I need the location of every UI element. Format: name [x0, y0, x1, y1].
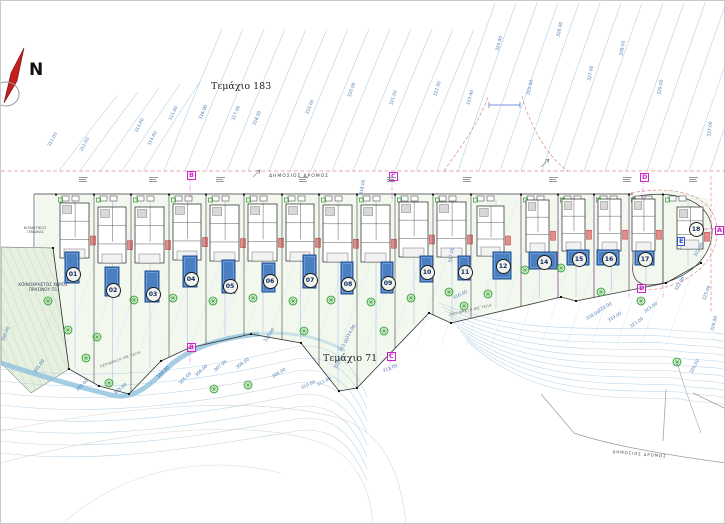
plot-number-16: 16: [602, 252, 617, 267]
tree-symbol: [64, 326, 72, 334]
contour-line: [668, 3, 725, 171]
utility-red-box: [468, 235, 473, 244]
house-stair-block: [213, 208, 222, 216]
plot-number-07: 07: [303, 273, 318, 288]
section-marker-d: D: [640, 173, 649, 182]
house-terrace: [365, 253, 386, 262]
gray-contour: [1, 429, 373, 524]
house-stair-block: [63, 206, 72, 214]
survey-point: [281, 194, 283, 196]
plot-number-06: 06: [263, 274, 278, 289]
plot-number-01: 01: [66, 267, 81, 282]
survey-point: [700, 262, 702, 264]
house-terrace: [252, 252, 273, 261]
tree-symbol: [445, 288, 453, 296]
parking-space: [222, 196, 229, 201]
section-marker-e: E: [677, 237, 685, 246]
utility-red-box: [430, 235, 435, 244]
survey-point: [250, 333, 252, 335]
parking-space: [411, 196, 418, 201]
survey-point: [593, 194, 595, 196]
utility-red-box: [354, 239, 359, 248]
utility-red-box: [241, 239, 246, 248]
utility-red-box: [203, 238, 208, 247]
tree-symbol: [484, 290, 492, 298]
plot-number-02: 02: [106, 283, 121, 298]
house-stair-block: [635, 202, 642, 210]
tree-symbol: [380, 327, 388, 335]
parking-space: [298, 196, 305, 201]
parking-space: [487, 196, 494, 201]
house-terrace: [102, 254, 122, 263]
house-stair-block: [364, 208, 373, 216]
plot-number-17: 17: [638, 252, 653, 267]
tree-symbol: [93, 333, 101, 341]
survey-point: [665, 282, 667, 284]
utility-red-box: [392, 239, 397, 248]
survey-point: [450, 322, 452, 324]
utility-tag: [689, 177, 699, 183]
utility-red-box: [551, 231, 556, 240]
house-stair-block: [138, 210, 147, 218]
parking-space: [185, 196, 192, 201]
survey-point: [168, 194, 170, 196]
parking-space: [250, 196, 257, 201]
parking-space: [147, 196, 154, 201]
survey-point: [243, 194, 245, 196]
parking-space: [335, 196, 342, 201]
utility-tag: [623, 177, 633, 183]
utility-red-box: [506, 236, 511, 245]
parking-space: [288, 196, 295, 201]
survey-point: [98, 385, 100, 387]
tree-symbol: [637, 297, 645, 305]
house-stair-block: [680, 210, 688, 218]
tree-symbol: [673, 358, 681, 366]
parking-space: [100, 196, 107, 201]
tree-symbol: [407, 294, 415, 302]
survey-point: [55, 194, 57, 196]
utility-red-box: [657, 230, 662, 239]
green-space-note-line2: ΠΡΑΣΙΝΟΥ Π1: [0, 287, 93, 292]
house-terrace: [530, 243, 545, 252]
section-marker-b: B: [187, 343, 196, 352]
utility-red-box: [279, 238, 284, 247]
survey-point: [432, 194, 434, 196]
survey-point: [428, 312, 430, 314]
tree-symbol: [105, 379, 113, 387]
parking-space: [175, 196, 182, 201]
utility-red-box: [91, 236, 96, 245]
parking-space: [449, 196, 456, 201]
utility-red-box: [587, 230, 592, 239]
gray-contour: [61, 465, 281, 524]
parking-space: [363, 196, 370, 201]
parking-space: [260, 196, 267, 201]
utility-red-box: [128, 241, 133, 250]
utility-red-box: [705, 232, 710, 241]
section-marker-d: D: [637, 284, 646, 293]
survey-point: [300, 342, 302, 344]
section-marker-b: B: [187, 171, 196, 180]
survey-point: [560, 296, 562, 298]
survey-point: [205, 194, 207, 196]
parcel-label-71: Τεμάχιο 71: [323, 353, 377, 364]
tree-symbol: [209, 297, 217, 305]
survey-point: [52, 247, 54, 249]
house-stair-block: [402, 205, 411, 213]
community-building-note: ΚΟΙΝΟΤΙΚΟΣ ΞΕΝΩΝΑΣ: [9, 226, 61, 235]
parking-space: [679, 196, 686, 201]
plot-number-09: 09: [381, 276, 396, 291]
tree-symbol: [367, 298, 375, 306]
house-stair-block: [529, 203, 536, 211]
utility-red-box: [623, 230, 628, 239]
parking-space: [401, 196, 408, 201]
bottom-road-line: [663, 389, 666, 441]
contour-line-slope: [1, 394, 367, 445]
utility-red-box: [316, 238, 321, 247]
survey-point: [557, 194, 559, 196]
house-stair-block: [289, 207, 298, 215]
branch-road-dashed: [444, 96, 488, 171]
survey-point: [628, 194, 630, 196]
tree-symbol: [130, 296, 138, 304]
survey-point: [93, 194, 95, 196]
contour-line-east: [451, 319, 725, 363]
contour-line-slope: [1, 430, 367, 481]
parking-space: [669, 196, 676, 201]
plot-number-03: 03: [146, 287, 161, 302]
survey-point: [470, 194, 472, 196]
tree-symbol: [249, 294, 257, 302]
section-marker-a: A: [715, 226, 724, 235]
survey-point: [662, 194, 664, 196]
house-stair-block: [440, 205, 449, 213]
contour-line-east: [460, 331, 725, 384]
tree-symbol: [244, 381, 252, 389]
section-marker-c: C: [387, 352, 396, 361]
tree-symbol: [597, 288, 605, 296]
utility-tag: [149, 177, 159, 183]
tree-symbol: [44, 297, 52, 305]
utility-tag: [387, 177, 397, 183]
tree-symbol: [210, 385, 218, 393]
parking-space: [325, 196, 332, 201]
house-stair-block: [565, 202, 572, 210]
survey-point: [130, 194, 132, 196]
tree-symbol: [289, 297, 297, 305]
tree-symbol: [557, 264, 565, 272]
site-plan-canvas: N Τεμάχιο 183 Τεμάχιο 71 ΔΗΜΟΣΙΟΣ ΔΡΟΜΟΣ…: [0, 0, 725, 524]
survey-point: [318, 194, 320, 196]
plot-number-10: 10: [420, 265, 435, 280]
tree-symbol: [169, 294, 177, 302]
house-terrace: [327, 253, 348, 262]
plot-number-15: 15: [572, 252, 587, 267]
slope-arrow: [541, 159, 549, 167]
plot-number-05: 05: [223, 279, 238, 294]
community-building-note-line2: ΞΕΝΩΝΑΣ: [9, 230, 61, 234]
house-stair-block: [176, 207, 185, 215]
survey-point: [520, 194, 522, 196]
survey-point: [394, 194, 396, 196]
house-stair-block: [326, 208, 335, 216]
parking-space: [137, 196, 144, 201]
utility-tag: [463, 177, 473, 183]
tree-symbol: [327, 296, 335, 304]
plot-number-11: 11: [458, 265, 473, 280]
house-stair-block: [601, 202, 608, 210]
gray-contour: [1, 405, 406, 524]
survey-point: [356, 194, 358, 196]
parking-space: [72, 196, 79, 201]
house-stair-block: [101, 210, 110, 218]
parking-space: [110, 196, 117, 201]
plot-number-08: 08: [341, 277, 356, 292]
tree-symbol: [82, 354, 90, 362]
north-label: N: [29, 60, 43, 80]
house-terrace: [139, 254, 160, 263]
house-terrace: [636, 242, 651, 251]
utility-tag: [216, 177, 226, 183]
utility-tag: [299, 177, 309, 183]
contour-line: [689, 3, 725, 171]
plot-number-18: 18: [689, 222, 704, 237]
contour-line-east: [454, 323, 725, 370]
parking-space: [62, 196, 69, 201]
survey-point: [128, 393, 130, 395]
utility-tag: [79, 177, 89, 183]
utility-red-box: [166, 241, 171, 250]
north-arrow-needle: [4, 48, 24, 103]
tree-symbol: [300, 327, 308, 335]
house-stair-block: [251, 207, 260, 215]
parking-space: [477, 196, 484, 201]
survey-point: [68, 368, 70, 370]
survey-point: [575, 300, 577, 302]
house-stair-block: [480, 209, 489, 217]
parking-space: [212, 196, 219, 201]
parking-space: [373, 196, 380, 201]
plot-number-14: 14: [537, 255, 552, 270]
parcel-label-183: Τεμάχιο 183: [211, 81, 271, 92]
tree-symbol: [521, 266, 529, 274]
contour-line-slope: [1, 406, 367, 457]
survey-point: [160, 360, 162, 362]
parking-space: [439, 196, 446, 201]
site-plan-drawing: [1, 1, 725, 524]
slope-arrow: [253, 170, 260, 177]
plot-number-04: 04: [184, 272, 199, 287]
plot-number-12: 12: [496, 259, 511, 274]
utility-tag: [549, 177, 559, 183]
green-space-note: ΚΟΙΝΟΧΡΗΣΤΟΣ ΧΩΡΟΣ ΠΡΑΣΙΝΟΥ Π1: [0, 282, 93, 293]
survey-point: [338, 390, 340, 392]
